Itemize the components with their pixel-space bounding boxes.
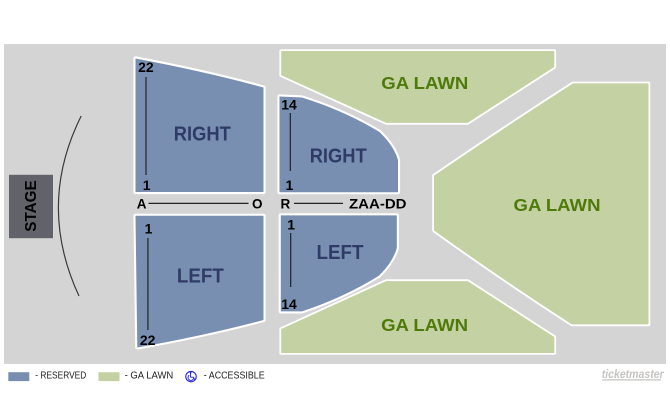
svg-text:- RESERVED: - RESERVED [35, 371, 86, 382]
svg-text:ticketmaster: ticketmaster [602, 367, 665, 381]
svg-text:GA LAWN: GA LAWN [514, 195, 601, 215]
svg-text:1: 1 [145, 220, 153, 236]
svg-text:1: 1 [287, 216, 295, 232]
svg-text:1: 1 [143, 177, 151, 193]
svg-text:GA LAWN: GA LAWN [381, 315, 468, 335]
svg-text:RIGHT: RIGHT [174, 124, 231, 146]
svg-text:GA LAWN: GA LAWN [381, 73, 468, 93]
svg-text:O: O [252, 197, 263, 212]
svg-text:- GA LAWN: - GA LAWN [125, 371, 174, 382]
svg-text:- ACCESSIBLE: - ACCESSIBLE [204, 371, 265, 382]
svg-text:14: 14 [281, 96, 297, 112]
svg-text:1: 1 [286, 177, 294, 193]
svg-text:A: A [137, 197, 147, 212]
svg-text:LEFT: LEFT [177, 266, 224, 288]
svg-text:ZAA-DD: ZAA-DD [349, 197, 407, 212]
svg-text:RIGHT: RIGHT [310, 146, 367, 168]
svg-text:22: 22 [138, 59, 154, 75]
svg-text:22: 22 [140, 332, 156, 348]
svg-text:14: 14 [281, 296, 297, 312]
svg-text:LEFT: LEFT [317, 242, 364, 264]
svg-text:R: R [281, 197, 291, 212]
svg-text:STAGE: STAGE [23, 180, 40, 232]
